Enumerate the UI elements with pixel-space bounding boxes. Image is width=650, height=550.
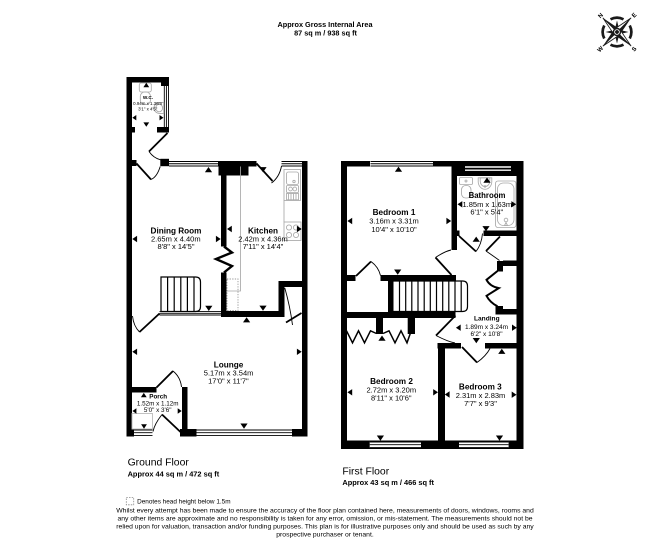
svg-text:Whilst every attempt has been: Whilst every attempt has been made to en… xyxy=(116,508,534,515)
svg-text:W.C.: W.C. xyxy=(143,95,153,100)
svg-text:relied upon for valuation, tra: relied upon for valuation, transaction a… xyxy=(116,524,534,531)
svg-text:any other items are approximat: any other items are approximate and no r… xyxy=(117,516,532,523)
svg-text:87 sq m / 938 sq ft: 87 sq m / 938 sq ft xyxy=(294,28,357,37)
svg-text:Landing: Landing xyxy=(474,315,500,322)
svg-text:Approx 43 sq m / 466 sq ft: Approx 43 sq m / 466 sq ft xyxy=(342,478,434,487)
svg-text:First Floor: First Floor xyxy=(342,466,389,477)
svg-text:8'8" x 14'5": 8'8" x 14'5" xyxy=(158,242,195,251)
svg-text:Porch: Porch xyxy=(149,393,167,400)
svg-text:Approx 44 sq m / 472 sq ft: Approx 44 sq m / 472 sq ft xyxy=(128,470,220,479)
svg-text:prospective purchaser or tenan: prospective purchaser or tenant. xyxy=(276,532,374,539)
svg-text:17'0" x 11'7": 17'0" x 11'7" xyxy=(208,377,249,386)
svg-text:Bathroom: Bathroom xyxy=(469,191,506,200)
svg-text:7'11" x 14'4": 7'11" x 14'4" xyxy=(243,242,284,251)
svg-text:5'0" x 3'6": 5'0" x 3'6" xyxy=(144,407,172,414)
svg-text:7'7" x 9'3": 7'7" x 9'3" xyxy=(464,399,497,408)
svg-text:0.94m x 1.38m: 0.94m x 1.38m xyxy=(133,101,162,106)
svg-text:6'2" x 10'8": 6'2" x 10'8" xyxy=(470,331,503,338)
svg-text:Ground Floor: Ground Floor xyxy=(128,457,190,468)
svg-text:3'1" x 4'5": 3'1" x 4'5" xyxy=(138,106,158,111)
svg-text:6'1" x 5'4": 6'1" x 5'4" xyxy=(470,208,503,217)
svg-text:8'11" x 10'6": 8'11" x 10'6" xyxy=(371,394,412,403)
svg-text:10'4" x 10'10": 10'4" x 10'10" xyxy=(371,225,417,234)
svg-text:Denotes head height below 1.5m: Denotes head height below 1.5m xyxy=(137,499,230,506)
svg-text:1.89m x 3.24m: 1.89m x 3.24m xyxy=(465,324,508,331)
